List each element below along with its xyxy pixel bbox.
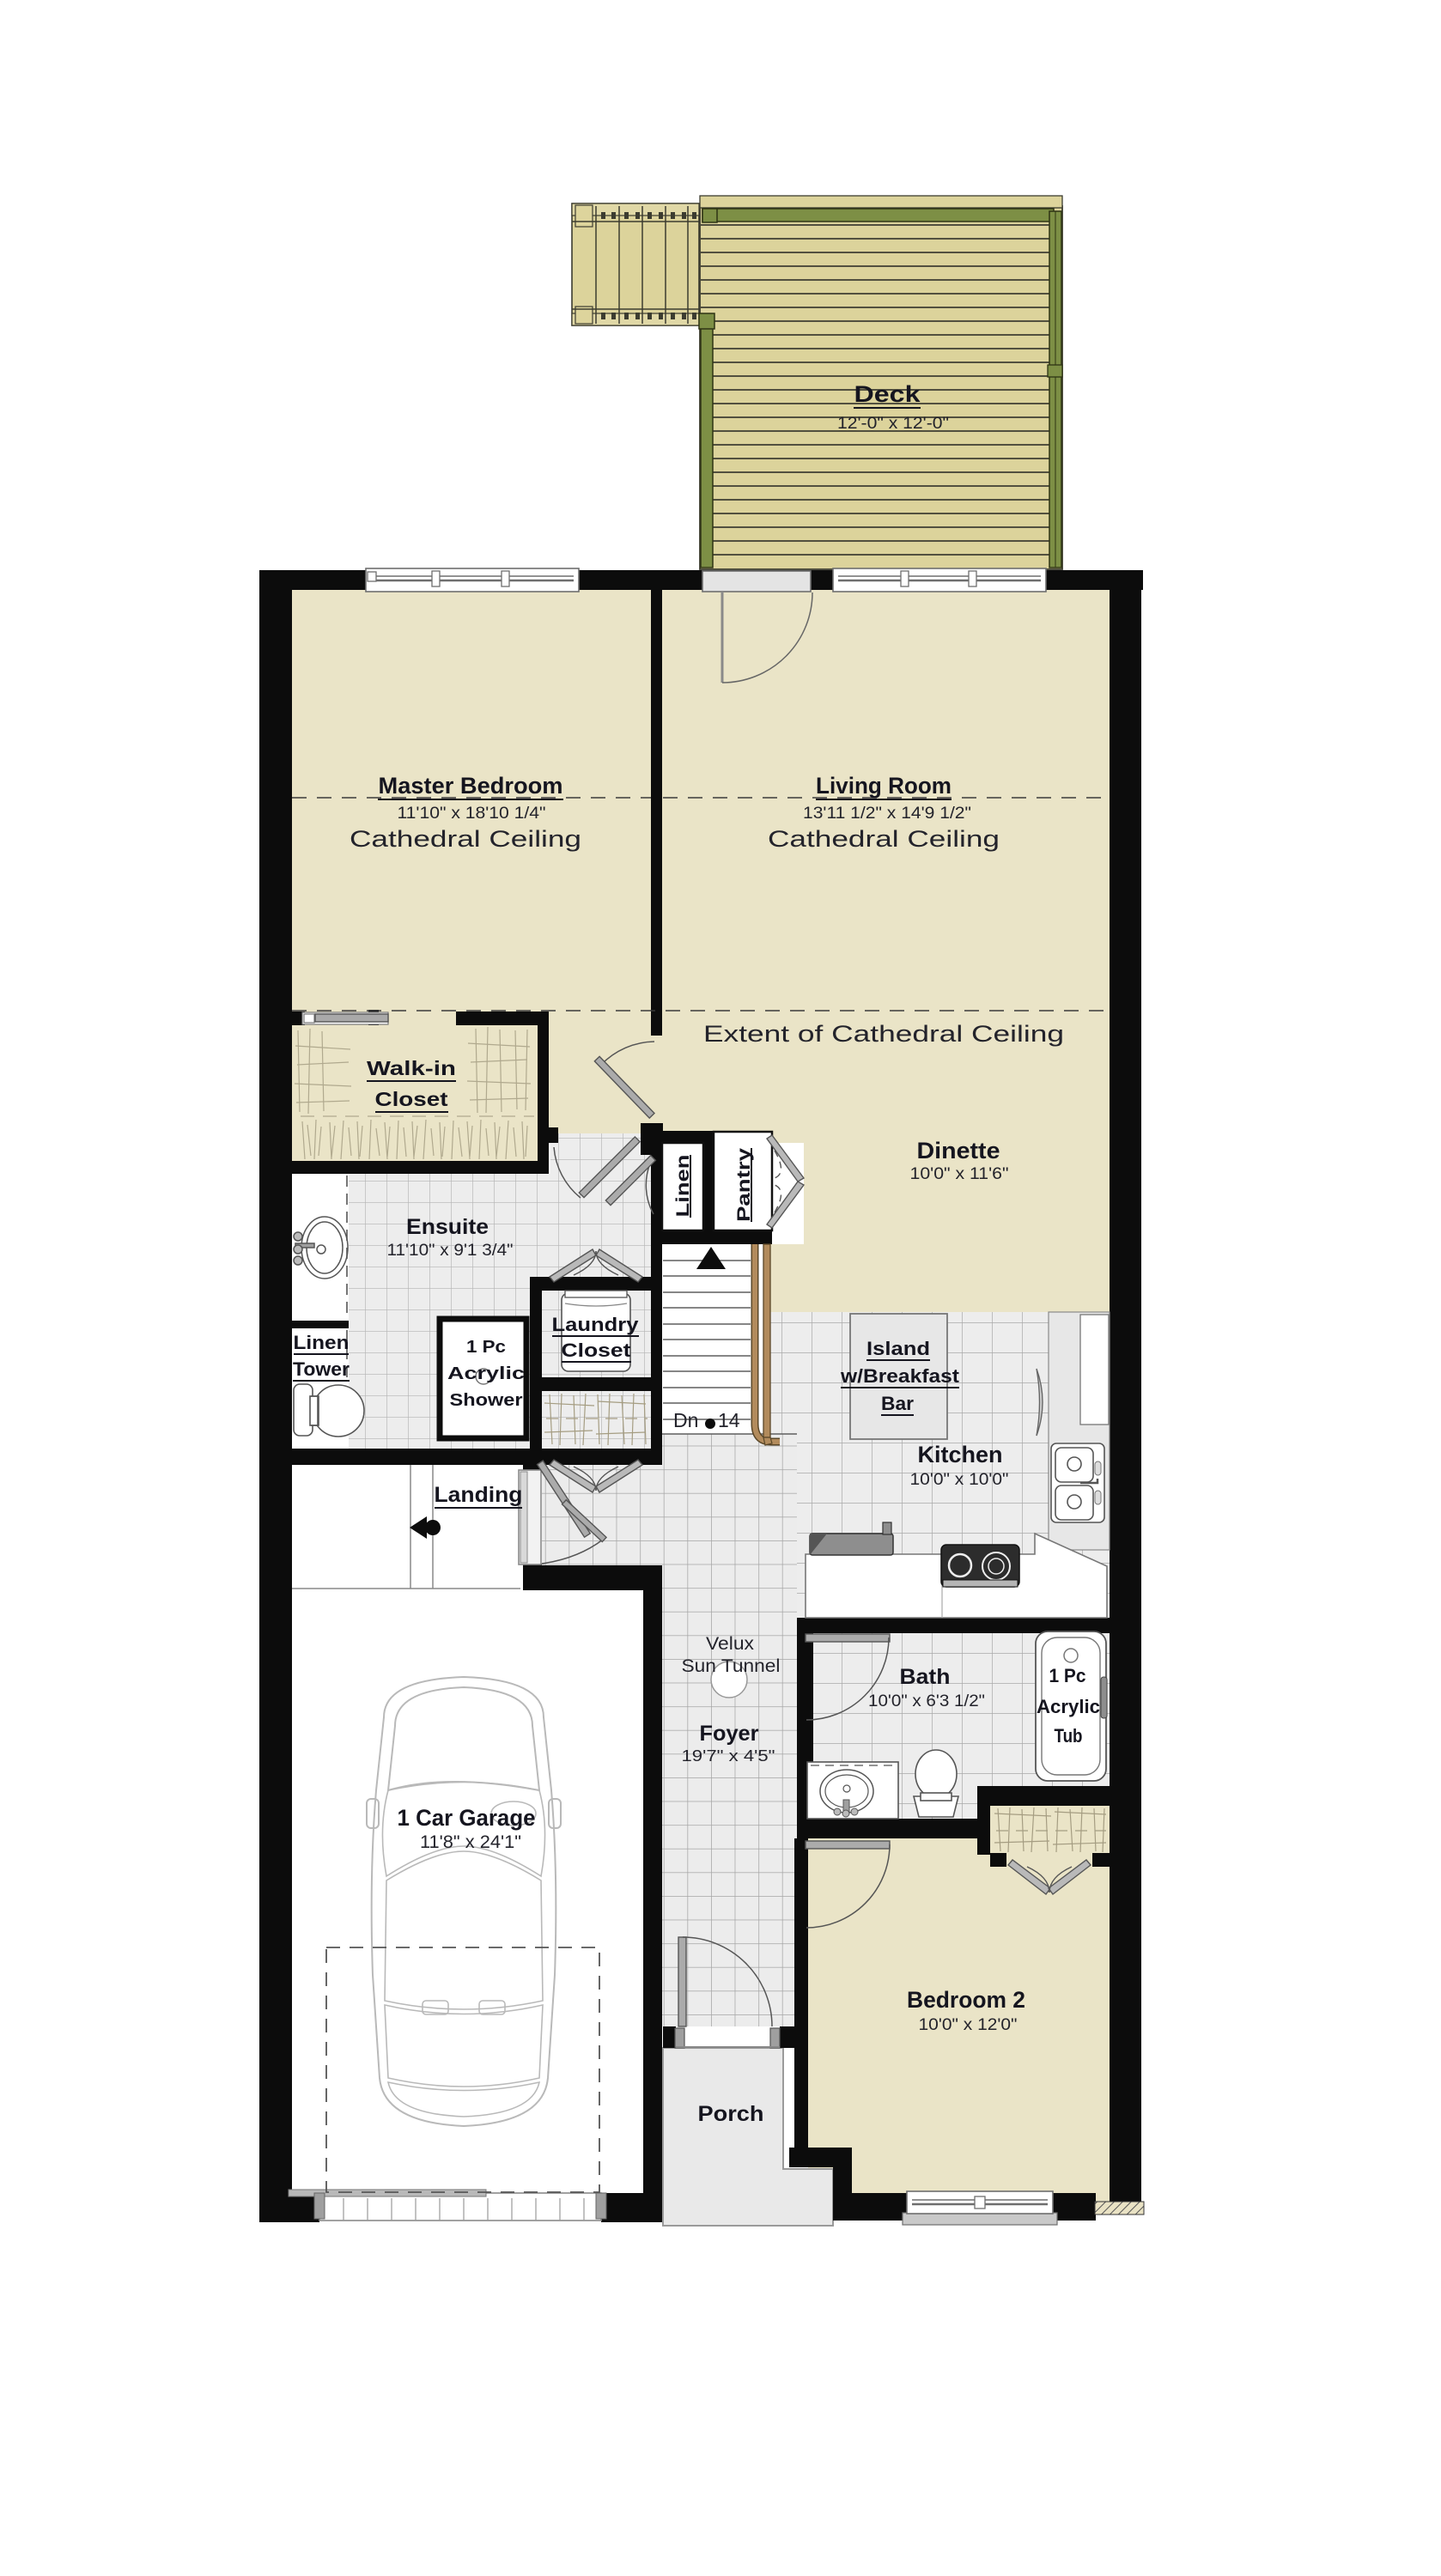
svg-text:10'0" x 11'6": 10'0" x 11'6" <box>910 1165 1009 1183</box>
svg-text:Cathedral Ceiling: Cathedral Ceiling <box>768 826 1000 852</box>
svg-text:Master Bedroom: Master Bedroom <box>379 773 563 799</box>
svg-text:10'0" x 6'3 1/2": 10'0" x 6'3 1/2" <box>868 1692 985 1710</box>
svg-text:Living Room: Living Room <box>816 773 952 799</box>
svg-text:Landing: Landing <box>435 1483 523 1507</box>
svg-text:Shower: Shower <box>450 1391 523 1410</box>
svg-text:10'0" x 12'0": 10'0" x 12'0" <box>919 2016 1018 2034</box>
svg-text:Dinette: Dinette <box>917 1138 1000 1163</box>
svg-text:Cathedral Ceiling: Cathedral Ceiling <box>350 826 581 852</box>
svg-text:Laundry: Laundry <box>552 1314 640 1335</box>
svg-text:w/Breakfast: w/Breakfast <box>840 1365 960 1387</box>
svg-text:11'10" x 18'10 1/4": 11'10" x 18'10 1/4" <box>398 805 546 823</box>
svg-text:Dn: Dn <box>673 1409 698 1431</box>
svg-text:Acrylic: Acrylic <box>1037 1696 1100 1717</box>
svg-text:1 Car Garage: 1 Car Garage <box>398 1805 536 1831</box>
svg-text:19'7" x 4'5": 19'7" x 4'5" <box>682 1747 775 1765</box>
svg-text:Bath: Bath <box>900 1665 951 1689</box>
svg-text:11'10" x 9'1 3/4": 11'10" x 9'1 3/4" <box>387 1242 514 1260</box>
svg-text:Tower: Tower <box>293 1358 350 1380</box>
svg-text:Bar: Bar <box>881 1393 914 1414</box>
svg-text:Walk-in: Walk-in <box>367 1057 456 1079</box>
svg-text:Ensuite: Ensuite <box>406 1215 489 1239</box>
svg-text:Closet: Closet <box>562 1340 632 1361</box>
svg-text:1 Pc: 1 Pc <box>1049 1665 1086 1686</box>
svg-text:11'8" x 24'1": 11'8" x 24'1" <box>420 1832 521 1852</box>
svg-text:Tub: Tub <box>1055 1725 1083 1747</box>
svg-text:Sun Tunnel: Sun Tunnel <box>682 1656 781 1676</box>
svg-text:Porch: Porch <box>698 2102 764 2126</box>
svg-text:1 Pc: 1 Pc <box>466 1338 506 1357</box>
svg-text:13'11 1/2" x 14'9 1/2": 13'11 1/2" x 14'9 1/2" <box>803 805 971 823</box>
svg-text:Bedroom 2: Bedroom 2 <box>907 1987 1025 2013</box>
svg-text:Closet: Closet <box>375 1088 448 1110</box>
svg-text:Linen: Linen <box>294 1332 350 1353</box>
svg-text:Acrylic: Acrylic <box>447 1364 525 1383</box>
svg-text:Foyer: Foyer <box>700 1722 759 1746</box>
svg-text:14: 14 <box>718 1409 740 1431</box>
svg-text:Island: Island <box>866 1338 930 1359</box>
svg-text:Deck: Deck <box>854 381 921 407</box>
svg-text:10'0" x 10'0": 10'0" x 10'0" <box>910 1471 1009 1489</box>
svg-text:12'-0" x 12'-0": 12'-0" x 12'-0" <box>837 415 949 433</box>
svg-text:Kitchen: Kitchen <box>918 1442 1003 1467</box>
svg-text:Extent of Cathedral Ceiling: Extent of Cathedral Ceiling <box>703 1021 1064 1047</box>
svg-text:Velux: Velux <box>706 1634 755 1654</box>
